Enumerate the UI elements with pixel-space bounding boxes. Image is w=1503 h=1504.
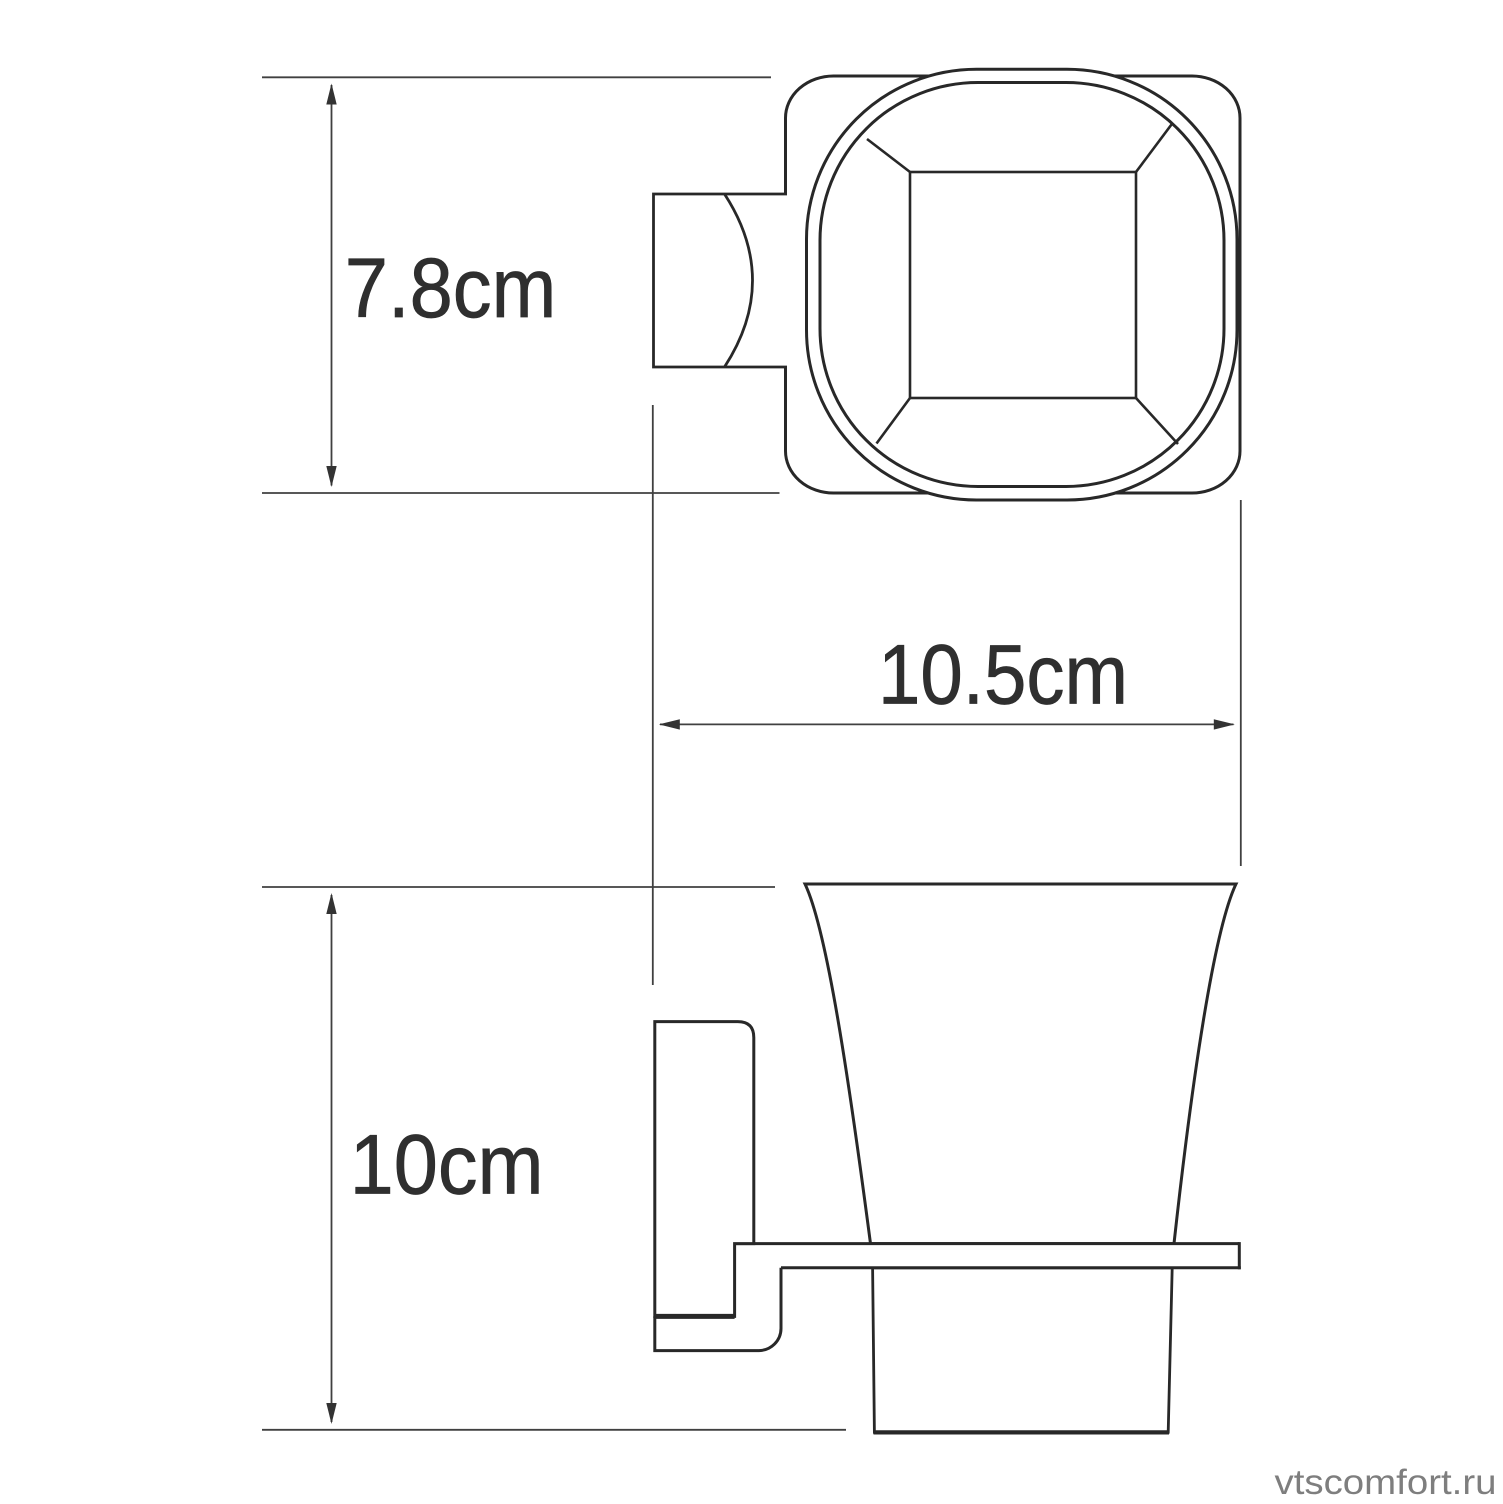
svg-text:10.5cm: 10.5cm [878, 628, 1128, 722]
svg-text:vtscomfort.ru: vtscomfort.ru [1275, 1463, 1497, 1502]
svg-text:7.8cm: 7.8cm [345, 241, 557, 335]
svg-text:10cm: 10cm [350, 1118, 544, 1212]
